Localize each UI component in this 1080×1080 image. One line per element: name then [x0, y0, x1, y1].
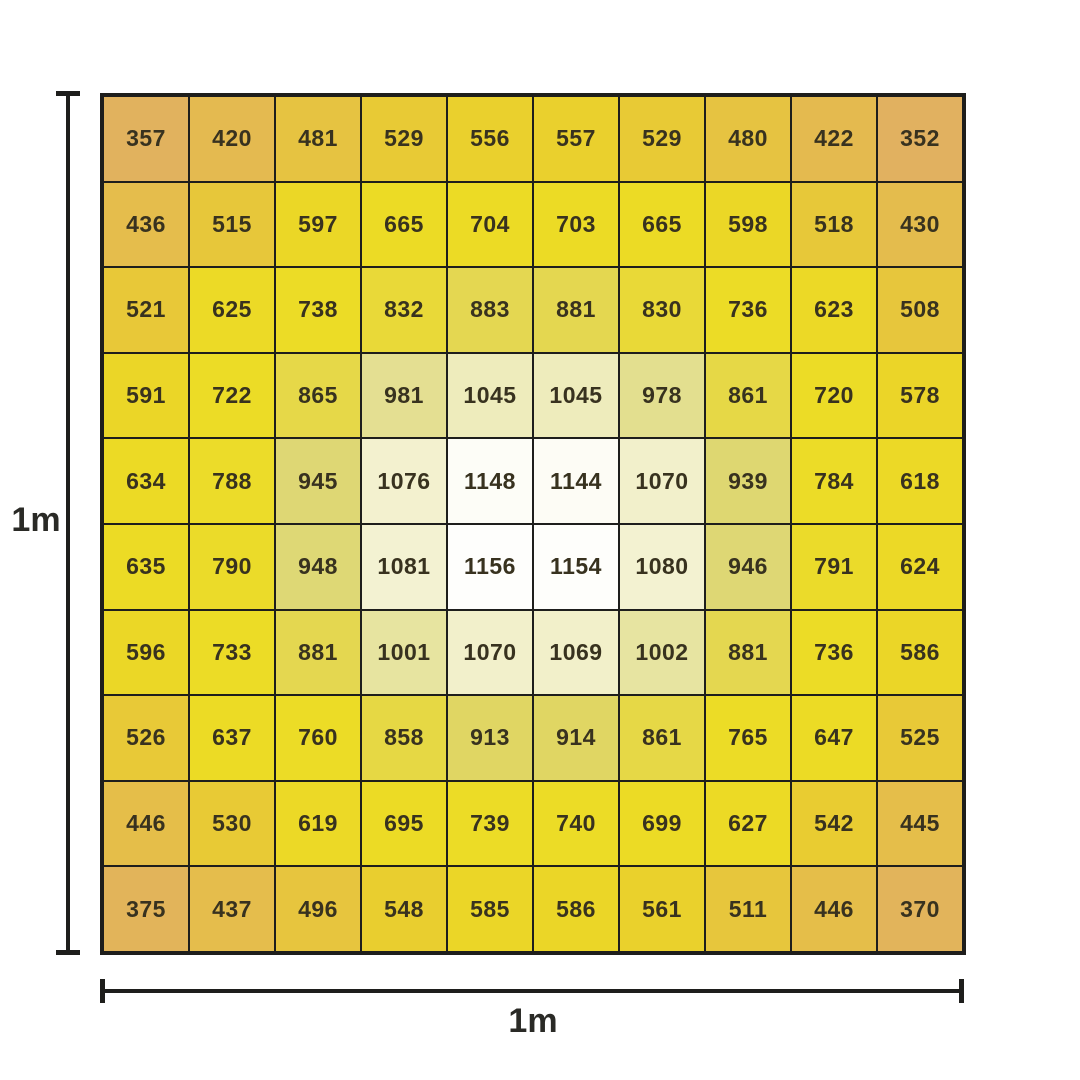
heatmap-cell-r1-c7: 529 — [620, 97, 704, 181]
heatmap-cell-r6-c8: 946 — [706, 525, 790, 609]
heatmap-cell-r2-c4: 665 — [362, 183, 446, 267]
heatmap-cell-r3-c5: 883 — [448, 268, 532, 352]
left-dimension-label: 1m — [8, 501, 64, 540]
heatmap-cell-r8-c8: 765 — [706, 696, 790, 780]
heatmap-cell-r5-c5: 1148 — [448, 439, 532, 523]
heatmap-cell-r4-c2: 722 — [190, 354, 274, 438]
heatmap-cell-r9-c8: 627 — [706, 782, 790, 866]
heatmap-cell-r9-c5: 739 — [448, 782, 532, 866]
heatmap-cell-r5-c7: 1070 — [620, 439, 704, 523]
heatmap-cell-r1-c1: 357 — [104, 97, 188, 181]
heatmap-cell-r2-c2: 515 — [190, 183, 274, 267]
heatmap-grid: 3574204815295565575294804223524365155976… — [100, 93, 966, 955]
heatmap-cell-r8-c7: 861 — [620, 696, 704, 780]
heatmap-cell-r4-c1: 591 — [104, 354, 188, 438]
heatmap-cell-r5-c6: 1144 — [534, 439, 618, 523]
figure-canvas: 1m 3574204815295565575294804223524365155… — [0, 0, 1080, 1080]
heatmap-cell-r5-c3: 945 — [276, 439, 360, 523]
vertical-dimension-cap-bottom — [56, 950, 80, 955]
heatmap-cell-r10-c1: 375 — [104, 867, 188, 951]
heatmap-cell-r8-c9: 647 — [792, 696, 876, 780]
heatmap-cell-r7-c1: 596 — [104, 611, 188, 695]
heatmap-cell-r6-c7: 1080 — [620, 525, 704, 609]
heatmap-cell-r2-c3: 597 — [276, 183, 360, 267]
heatmap-cell-r7-c9: 736 — [792, 611, 876, 695]
bottom-dimension-label: 1m — [100, 1002, 966, 1041]
heatmap-cell-r10-c10: 370 — [878, 867, 962, 951]
heatmap-cell-r3-c9: 623 — [792, 268, 876, 352]
heatmap-cell-r3-c3: 738 — [276, 268, 360, 352]
heatmap-cell-r6-c9: 791 — [792, 525, 876, 609]
heatmap-cell-r6-c6: 1154 — [534, 525, 618, 609]
heatmap-cell-r4-c6: 1045 — [534, 354, 618, 438]
heatmap-cell-r9-c3: 619 — [276, 782, 360, 866]
heatmap-cell-r3-c1: 521 — [104, 268, 188, 352]
heatmap-cell-r1-c10: 352 — [878, 97, 962, 181]
heatmap-cell-r1-c3: 481 — [276, 97, 360, 181]
heatmap-cell-r1-c4: 529 — [362, 97, 446, 181]
heatmap-cell-r4-c5: 1045 — [448, 354, 532, 438]
heatmap-cell-r2-c9: 518 — [792, 183, 876, 267]
heatmap-cell-r8-c2: 637 — [190, 696, 274, 780]
heatmap-cell-r5-c4: 1076 — [362, 439, 446, 523]
heatmap-cell-r4-c10: 578 — [878, 354, 962, 438]
heatmap-cell-r3-c6: 881 — [534, 268, 618, 352]
heatmap-cell-r5-c2: 788 — [190, 439, 274, 523]
heatmap-cell-r7-c7: 1002 — [620, 611, 704, 695]
heatmap-cell-r8-c6: 914 — [534, 696, 618, 780]
heatmap-cell-r1-c5: 556 — [448, 97, 532, 181]
heatmap-cell-r7-c6: 1069 — [534, 611, 618, 695]
heatmap-cell-r2-c6: 703 — [534, 183, 618, 267]
heatmap-cell-r6-c1: 635 — [104, 525, 188, 609]
heatmap-cell-r7-c8: 881 — [706, 611, 790, 695]
heatmap-cell-r2-c5: 704 — [448, 183, 532, 267]
heatmap-cell-r2-c8: 598 — [706, 183, 790, 267]
heatmap-cell-r3-c8: 736 — [706, 268, 790, 352]
heatmap-cell-r6-c2: 790 — [190, 525, 274, 609]
heatmap-cell-r4-c7: 978 — [620, 354, 704, 438]
heatmap-cell-r10-c8: 511 — [706, 867, 790, 951]
heatmap-cell-r7-c10: 586 — [878, 611, 962, 695]
heatmap-cell-r10-c4: 548 — [362, 867, 446, 951]
heatmap-cell-r4-c9: 720 — [792, 354, 876, 438]
heatmap-cell-r5-c1: 634 — [104, 439, 188, 523]
heatmap-cell-r1-c9: 422 — [792, 97, 876, 181]
horizontal-dimension-cap-left — [100, 979, 105, 1003]
horizontal-dimension-line — [102, 989, 964, 993]
heatmap-cell-r9-c10: 445 — [878, 782, 962, 866]
heatmap-cell-r7-c2: 733 — [190, 611, 274, 695]
heatmap-cell-r9-c1: 446 — [104, 782, 188, 866]
heatmap-cell-r10-c5: 585 — [448, 867, 532, 951]
heatmap-cell-r6-c3: 948 — [276, 525, 360, 609]
vertical-dimension-line — [66, 93, 70, 955]
heatmap-cell-r1-c6: 557 — [534, 97, 618, 181]
heatmap-cell-r6-c4: 1081 — [362, 525, 446, 609]
heatmap-cell-r8-c5: 913 — [448, 696, 532, 780]
heatmap-cell-r2-c10: 430 — [878, 183, 962, 267]
heatmap-cell-r9-c7: 699 — [620, 782, 704, 866]
heatmap-cell-r9-c6: 740 — [534, 782, 618, 866]
heatmap-cell-r9-c2: 530 — [190, 782, 274, 866]
heatmap-cell-r10-c3: 496 — [276, 867, 360, 951]
heatmap-cell-r6-c5: 1156 — [448, 525, 532, 609]
vertical-dimension-cap-top — [56, 91, 80, 96]
heatmap-cell-r8-c3: 760 — [276, 696, 360, 780]
heatmap-cell-r9-c9: 542 — [792, 782, 876, 866]
heatmap-cell-r7-c3: 881 — [276, 611, 360, 695]
heatmap-cell-r3-c7: 830 — [620, 268, 704, 352]
heatmap-cell-r8-c4: 858 — [362, 696, 446, 780]
heatmap-cell-r4-c3: 865 — [276, 354, 360, 438]
heatmap-cell-r7-c4: 1001 — [362, 611, 446, 695]
heatmap-cell-r4-c4: 981 — [362, 354, 446, 438]
heatmap-cell-r1-c2: 420 — [190, 97, 274, 181]
heatmap-cell-r5-c9: 784 — [792, 439, 876, 523]
heatmap-cell-r10-c2: 437 — [190, 867, 274, 951]
horizontal-dimension-cap-right — [959, 979, 964, 1003]
heatmap-cell-r3-c10: 508 — [878, 268, 962, 352]
heatmap-cell-r7-c5: 1070 — [448, 611, 532, 695]
heatmap-cell-r5-c10: 618 — [878, 439, 962, 523]
heatmap-cell-r10-c9: 446 — [792, 867, 876, 951]
heatmap-cell-r8-c10: 525 — [878, 696, 962, 780]
heatmap-cell-r2-c1: 436 — [104, 183, 188, 267]
heatmap-cell-r10-c6: 586 — [534, 867, 618, 951]
heatmap-cell-r1-c8: 480 — [706, 97, 790, 181]
heatmap-cell-r6-c10: 624 — [878, 525, 962, 609]
heatmap-cell-r5-c8: 939 — [706, 439, 790, 523]
heatmap-cell-r8-c1: 526 — [104, 696, 188, 780]
heatmap-cell-r3-c2: 625 — [190, 268, 274, 352]
heatmap-cell-r2-c7: 665 — [620, 183, 704, 267]
heatmap-cell-r10-c7: 561 — [620, 867, 704, 951]
heatmap-cell-r3-c4: 832 — [362, 268, 446, 352]
heatmap-cell-r4-c8: 861 — [706, 354, 790, 438]
heatmap-cell-r9-c4: 695 — [362, 782, 446, 866]
